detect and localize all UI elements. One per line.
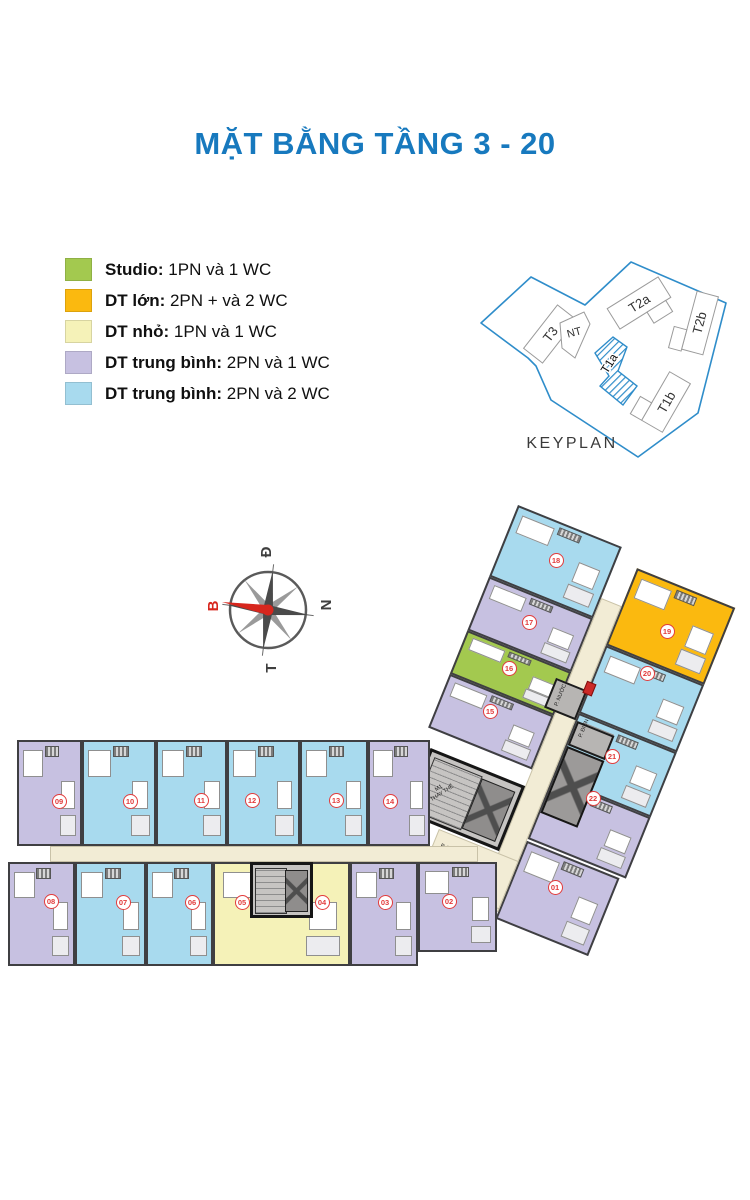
central-stair-core bbox=[250, 862, 313, 918]
unit-badge-06: 06 bbox=[185, 895, 200, 910]
floor-plan-page: MẶT BẰNG TẦNG 3 - 20 Studio: 1PN và 1 WC… bbox=[0, 0, 750, 1200]
furniture-bath bbox=[52, 936, 69, 956]
unit-badge-12: 12 bbox=[245, 793, 260, 808]
furniture-bath bbox=[122, 936, 140, 956]
furniture-bed bbox=[516, 515, 555, 546]
unit-12 bbox=[227, 740, 300, 846]
furniture-bath bbox=[275, 815, 294, 835]
unit-badge-01: 01 bbox=[548, 880, 563, 895]
unit-badge-22: 22 bbox=[586, 791, 601, 806]
furniture-ward bbox=[379, 868, 394, 879]
unit-badge-19: 19 bbox=[660, 624, 675, 639]
unit-09 bbox=[17, 740, 82, 846]
furniture-ward bbox=[452, 867, 469, 877]
furniture-ward bbox=[673, 590, 697, 607]
unit-badge-05: 05 bbox=[235, 895, 250, 910]
furniture-bed bbox=[523, 851, 559, 882]
elevator-shaft-2 bbox=[285, 870, 308, 912]
furniture-table bbox=[570, 897, 598, 926]
unit-badge-15: 15 bbox=[483, 704, 498, 719]
unit-badge-10: 10 bbox=[123, 794, 138, 809]
furniture-table bbox=[472, 897, 489, 921]
unit-badge-17: 17 bbox=[522, 615, 537, 630]
furniture-table bbox=[685, 625, 714, 654]
furniture-bed bbox=[604, 655, 641, 684]
furniture-bed bbox=[162, 750, 184, 776]
furniture-ward bbox=[174, 868, 189, 879]
staircase-2 bbox=[255, 868, 287, 914]
furniture-bath bbox=[306, 936, 340, 956]
unit-badge-14: 14 bbox=[383, 794, 398, 809]
furniture-bed bbox=[373, 750, 392, 776]
unit-badge-03: 03 bbox=[378, 895, 393, 910]
furniture-bed bbox=[233, 750, 256, 776]
furniture-bed bbox=[81, 872, 103, 898]
furniture-bath bbox=[203, 815, 221, 835]
furniture-bed bbox=[356, 872, 377, 898]
furniture-bed bbox=[634, 579, 672, 611]
furniture-bath bbox=[409, 815, 425, 835]
furniture-bath bbox=[131, 815, 150, 835]
unit-badge-04: 04 bbox=[315, 895, 330, 910]
unit-badge-08: 08 bbox=[44, 894, 59, 909]
furniture-bed bbox=[23, 750, 43, 776]
unit-badge-02: 02 bbox=[442, 894, 457, 909]
furniture-ward bbox=[105, 868, 120, 879]
unit-10 bbox=[82, 740, 156, 846]
unit-badge-21: 21 bbox=[605, 749, 620, 764]
furniture-bath bbox=[60, 815, 77, 835]
furniture-ward bbox=[45, 746, 59, 757]
unit-badge-11: 11 bbox=[194, 793, 209, 808]
furniture-table bbox=[410, 781, 424, 810]
furniture-ward bbox=[113, 746, 129, 757]
furniture-bed bbox=[88, 750, 111, 776]
unit-badge-16: 16 bbox=[502, 661, 517, 676]
furniture-bath bbox=[471, 926, 491, 943]
main-corridor bbox=[50, 846, 478, 862]
furniture-ward bbox=[615, 734, 639, 750]
furniture-bath bbox=[345, 815, 362, 835]
furniture-ward bbox=[36, 868, 51, 879]
furniture-ward bbox=[258, 746, 274, 757]
furniture-ward bbox=[561, 861, 584, 877]
furniture-bed bbox=[425, 871, 450, 894]
unit-badge-18: 18 bbox=[549, 553, 564, 568]
unit-06 bbox=[146, 862, 213, 966]
unit-badge-09: 09 bbox=[52, 794, 67, 809]
furniture-ward bbox=[557, 527, 582, 544]
furniture-bed bbox=[14, 872, 35, 898]
unit-08 bbox=[8, 862, 75, 966]
furniture-ward bbox=[186, 746, 201, 757]
furniture-bath bbox=[561, 921, 590, 946]
unit-badge-13: 13 bbox=[329, 793, 344, 808]
unit-badge-07: 07 bbox=[116, 895, 131, 910]
furniture-table bbox=[346, 781, 361, 810]
furniture-bath bbox=[190, 936, 207, 956]
furniture-table bbox=[396, 902, 411, 930]
unit-14 bbox=[368, 740, 430, 846]
unit-07 bbox=[75, 862, 146, 966]
furniture-bed bbox=[152, 872, 173, 898]
furniture-ward bbox=[329, 746, 344, 757]
furniture-ward bbox=[394, 746, 408, 757]
floor-plan: M1 THAY THẾ P. ĐIỆN P. NƯỚC P. RÁC H.K 0… bbox=[0, 0, 750, 1200]
unit-03 bbox=[350, 862, 418, 966]
unit-02 bbox=[418, 862, 497, 952]
unit-badge-20: 20 bbox=[640, 666, 655, 681]
unit-11 bbox=[156, 740, 227, 846]
furniture-table bbox=[277, 781, 293, 810]
furniture-bath bbox=[395, 936, 412, 956]
furniture-bed bbox=[306, 750, 327, 776]
